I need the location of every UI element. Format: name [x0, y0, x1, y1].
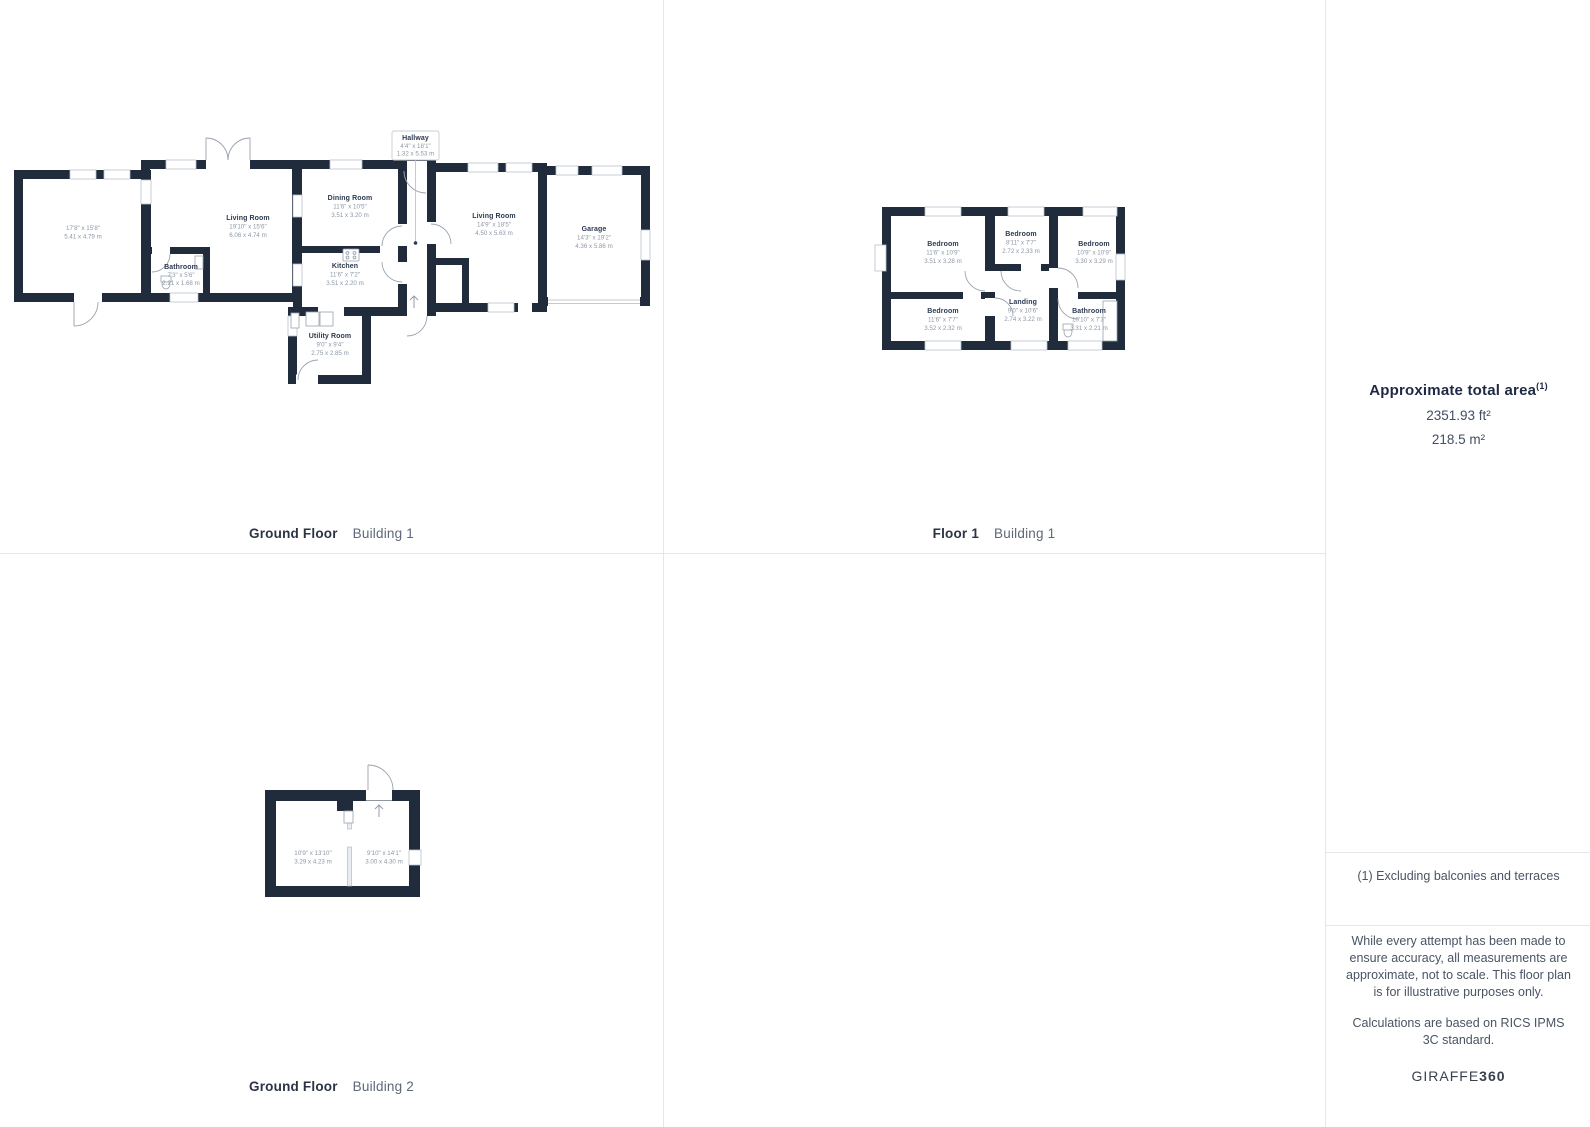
- caption-floor-label: Ground Floor: [249, 526, 338, 541]
- room-dims-metric: 3.52 x 2.32 m: [924, 325, 962, 332]
- room-dims-imperial: 14'3" x 19'2": [577, 235, 611, 242]
- door-arcs: [368, 765, 393, 790]
- room-label: Bedroom 8'11" x 7'7" 2.72 x 2.33 m: [1002, 231, 1040, 255]
- room-dims-imperial: 9'10" x 14'1": [367, 850, 401, 857]
- room-dims-metric: 2.21 x 1.68 m: [162, 280, 200, 287]
- room-name: Bathroom: [1072, 308, 1106, 315]
- room-label: Kitchen 11'6" x 7'2" 3.51 x 2.20 m: [326, 263, 364, 287]
- windows: [409, 850, 421, 865]
- standard-text: Calculations are based on RICS IPMS 3C s…: [1346, 1015, 1571, 1049]
- room-label: 17'8" x 15'8" 5.41 x 4.79 m: [64, 225, 102, 241]
- room-dims-imperial: 11'6" x 10'9": [926, 250, 959, 257]
- room-dims-metric: 3.51 x 2.20 m: [326, 280, 364, 287]
- room-dims-metric: 4.36 x 5.86 m: [575, 243, 613, 250]
- brand-suffix: 360: [1479, 1068, 1505, 1084]
- room-dims-imperial: 17'8" x 15'8": [66, 225, 100, 232]
- room-dims-metric: 1.32 x 5.53 m: [397, 151, 435, 158]
- room-name: Bedroom: [1078, 241, 1109, 248]
- room-name: Bedroom: [927, 308, 958, 315]
- room-dims-imperial: 9'0" x 10'6": [1008, 308, 1039, 315]
- total-area-title: Approximate total area(1): [1326, 381, 1590, 399]
- room-dims-imperial: 10'10" x 7'3": [1072, 317, 1106, 324]
- room-dims-metric: 2.72 x 2.33 m: [1002, 248, 1040, 255]
- plan-ground-floor-building-2: 10'9" x 13'10" 3.29 x 4.23 m 9'10" x 14'…: [0, 553, 663, 1127]
- total-area-block: Approximate total area(1) 2351.93 ft² 21…: [1326, 381, 1590, 447]
- sidebar-divider-bottom: [1326, 925, 1590, 926]
- caption-floor-label: Floor 1: [933, 526, 979, 541]
- room-label: Dining Room 11'6" x 10'5" 3.51 x 3.20 m: [328, 195, 373, 219]
- room-label: 9'10" x 14'1" 3.00 x 4.30 m: [365, 850, 403, 866]
- sidebar: Approximate total area(1) 2351.93 ft² 21…: [1325, 0, 1590, 1127]
- room-dims-metric: 2.75 x 2.85 m: [311, 350, 349, 357]
- room-name: Garage: [582, 226, 607, 233]
- room-label: Bathroom 7'3" x 5'6" 2.21 x 1.68 m: [162, 264, 200, 287]
- room-dims-imperial: 19'10" x 15'6": [229, 224, 266, 231]
- sidebar-divider-top: [1326, 852, 1590, 853]
- room-label: Living Room 19'10" x 15'6" 6.06 x 4.74 m: [226, 215, 270, 239]
- plan-ground-floor-building-1: Hallway 4'4" x 18'1" 1.32 x 5.53 m 17'8"…: [0, 0, 663, 553]
- caption-ground-floor-building-1: Ground FloorBuilding 1: [0, 526, 663, 541]
- room-dims-imperial: 8'11" x 7'7": [1006, 240, 1036, 247]
- caption-floor-label: Ground Floor: [249, 1079, 338, 1094]
- room-label: Bathroom 10'10" x 7'3" 3.31 x 2.21 m: [1070, 308, 1108, 332]
- floorplan-sheet: Hallway 4'4" x 18'1" 1.32 x 5.53 m 17'8"…: [0, 0, 1590, 1127]
- room-dims-metric: 3.51 x 3.20 m: [331, 212, 369, 219]
- caption-building-label: Building 2: [353, 1079, 414, 1094]
- total-area-m: 218.5 m²: [1326, 432, 1590, 447]
- legal-block: While every attempt has been made to ens…: [1326, 933, 1590, 1085]
- room-name: Bathroom: [164, 264, 198, 271]
- room-dims-metric: 2.74 x 3.22 m: [1004, 316, 1042, 323]
- room-dims-metric: 3.31 x 2.21 m: [1070, 325, 1108, 332]
- fixtures: [344, 811, 353, 823]
- room-dims-metric: 3.29 x 4.23 m: [294, 859, 332, 866]
- room-name: Living Room: [472, 213, 516, 220]
- caption-building-label: Building 1: [994, 526, 1055, 541]
- brand-text: GIRAFFE: [1411, 1068, 1479, 1084]
- room-label: 10'9" x 13'10" 3.29 x 4.23 m: [294, 850, 332, 866]
- room-label: Bedroom 10'9" x 10'9" 3.30 x 3.29 m: [1075, 241, 1113, 265]
- room-dims-metric: 5.41 x 4.79 m: [64, 234, 102, 241]
- room-dims-imperial: 11'6" x 7'7": [928, 317, 958, 324]
- caption-floor-1-building-1: Floor 1Building 1: [663, 526, 1325, 541]
- room-name: Bedroom: [1005, 231, 1036, 238]
- room-dims-imperial: 4'4" x 18'1": [400, 143, 431, 150]
- room-label: Bedroom 11'6" x 7'7" 3.52 x 2.32 m: [924, 308, 962, 332]
- room-name: Living Room: [226, 215, 270, 222]
- room-dims-imperial: 10'9" x 13'10": [294, 850, 331, 857]
- room-dims-metric: 6.06 x 4.74 m: [229, 232, 267, 239]
- room-dims-imperial: 10'9" x 10'9": [1077, 250, 1111, 257]
- room-label: Bedroom 11'6" x 10'9" 3.51 x 3.28 m: [924, 241, 962, 265]
- room-dims-metric: 4.50 x 5.63 m: [475, 230, 513, 237]
- room-dims-imperial: 7'3" x 5'6": [167, 272, 194, 279]
- room-name: Kitchen: [332, 263, 358, 270]
- wall-stub: [337, 801, 353, 811]
- room-label: Living Room 14'9" x 18'5" 4.50 x 5.63 m: [472, 213, 516, 237]
- caption-ground-floor-building-2: Ground FloorBuilding 2: [0, 1079, 663, 1094]
- plan-floor-1-building-1: Bedroom 11'6" x 10'9" 3.51 x 3.28 m Bedr…: [663, 0, 1325, 553]
- door-openings: [366, 790, 392, 801]
- room-dims-imperial: 11'6" x 10'5": [333, 204, 366, 211]
- caption-building-label: Building 1: [353, 526, 414, 541]
- room-name: Hallway: [402, 135, 429, 142]
- room-name: Landing: [1009, 299, 1037, 306]
- room-name: Dining Room: [328, 195, 373, 202]
- total-area-ft: 2351.93 ft²: [1326, 408, 1590, 423]
- room-name: Utility Room: [309, 333, 351, 340]
- room-dims-metric: 3.30 x 3.29 m: [1075, 258, 1113, 265]
- room-dims-metric: 3.00 x 4.30 m: [365, 859, 403, 866]
- room-name: Bedroom: [927, 241, 958, 248]
- total-area-title-text: Approximate total area: [1369, 382, 1536, 399]
- room-dims-imperial: 9'0" x 9'4": [316, 342, 343, 349]
- disclaimer-text: While every attempt has been made to ens…: [1346, 933, 1571, 1001]
- room-dims-metric: 3.51 x 3.28 m: [924, 258, 962, 265]
- footnote-marker: (1): [1536, 381, 1548, 391]
- room-label: Landing 9'0" x 10'6" 2.74 x 3.22 m: [1004, 299, 1042, 323]
- room-dims-imperial: 14'9" x 18'5": [477, 222, 511, 229]
- room-dims-imperial: 11'6" x 7'2": [330, 272, 360, 279]
- footnote-text: (1) Excluding balconies and terraces: [1326, 869, 1590, 883]
- giraffe360-logo: GIRAFFE360: [1346, 1068, 1571, 1085]
